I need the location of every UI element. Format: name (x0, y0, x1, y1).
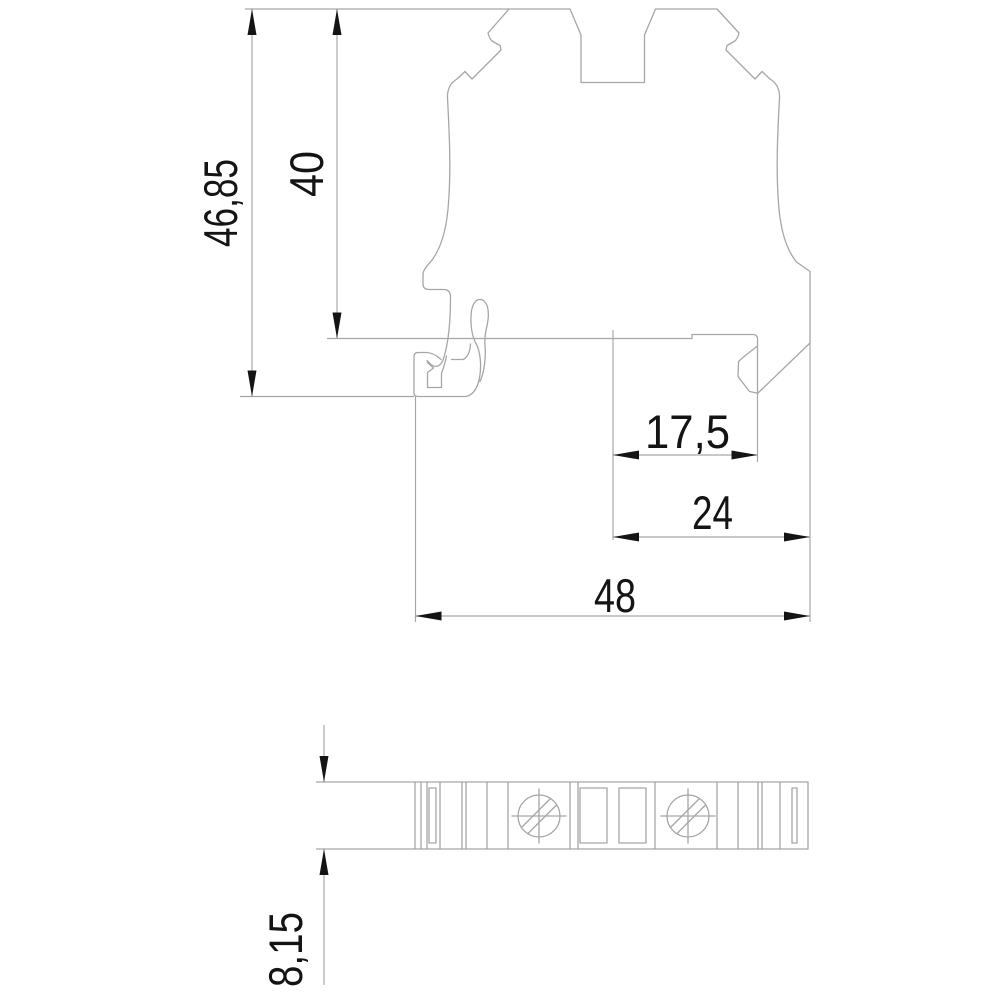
dimension-center-to-edge-24: 24 (613, 343, 810, 622)
latch-claw-inner (738, 346, 758, 393)
profile-left-edge (423, 9, 509, 366)
arrowhead-left (416, 612, 442, 621)
arrowhead-down (333, 313, 342, 339)
arrowhead-up (333, 9, 342, 35)
dimension-label-depth: 8,15 (259, 912, 312, 987)
insert-strip-right (792, 788, 797, 843)
dimension-label-center-to-edge: 24 (692, 486, 733, 539)
arrowhead-right (732, 451, 758, 460)
lower-body-outline (415, 782, 808, 849)
arrowhead-up (320, 849, 329, 875)
snap-clip-finger (466, 299, 488, 396)
rail-seat-step-and-latch-edge (692, 335, 758, 394)
drawing-canvas: 46,85 40 17,5 24 48 8,15 (0, 0, 1000, 1000)
lower-partition-lines (421, 782, 780, 849)
lower-view-top (415, 782, 808, 849)
arrowhead-down (320, 756, 329, 782)
screw-crosshair (512, 789, 566, 843)
dimension-upper-height-40: 40 (280, 9, 692, 339)
arrowhead-left (613, 533, 639, 542)
center-insert-right (619, 788, 646, 843)
dimension-label-upper-height: 40 (280, 151, 333, 197)
dimension-label-total-width: 48 (594, 569, 636, 622)
insert-strip-left (429, 788, 436, 843)
arrowhead-right (784, 612, 810, 621)
dimension-rail-to-edge-17-5: 17,5 (613, 330, 758, 540)
profile-right-edge (717, 9, 810, 394)
arrowhead-left (613, 451, 639, 460)
arrowhead-up (248, 9, 257, 35)
dimension-depth-8-15: 8,15 (259, 725, 415, 987)
clamp-screw-right (661, 789, 715, 843)
screw-crosshair (661, 789, 715, 843)
arrowhead-right (784, 533, 810, 542)
arrowhead-down (248, 371, 257, 397)
dimension-label-rail-to-edge: 17,5 (645, 405, 730, 458)
din-rail-hook-tooth (428, 356, 447, 388)
center-insert-left (580, 788, 607, 843)
snap-clip-finger-inner (452, 344, 471, 360)
dimension-label-total-height: 46,85 (194, 159, 247, 247)
terminal-block-technical-drawing: 46,85 40 17,5 24 48 8,15 (0, 0, 1000, 1000)
clamp-screw-left (512, 789, 566, 843)
profile-top-tabs-and-marking-slot (509, 9, 717, 83)
